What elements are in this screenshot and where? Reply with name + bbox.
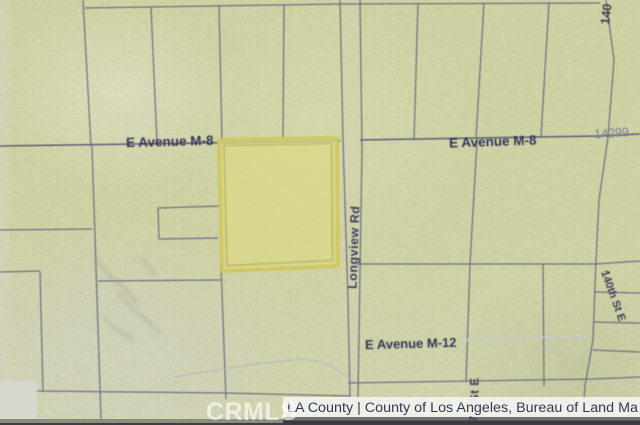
svg-text:E Avenue M-8: E Avenue M-8 (449, 133, 537, 151)
svg-text:7: 7 (468, 416, 480, 422)
svg-text:E Avenue M-8: E Avenue M-8 (126, 133, 214, 150)
svg-text:140: 140 (598, 3, 614, 25)
svg-text:LA County | County of Los Ange: LA County | County of Los Angeles, Burea… (287, 400, 639, 415)
svg-text:Longview Rd: Longview Rd (346, 205, 363, 289)
svg-text:CRMLS: CRMLS (206, 398, 297, 425)
svg-text:E Avenue M-12: E Avenue M-12 (365, 335, 457, 352)
svg-text:14299: 14299 (594, 125, 630, 141)
